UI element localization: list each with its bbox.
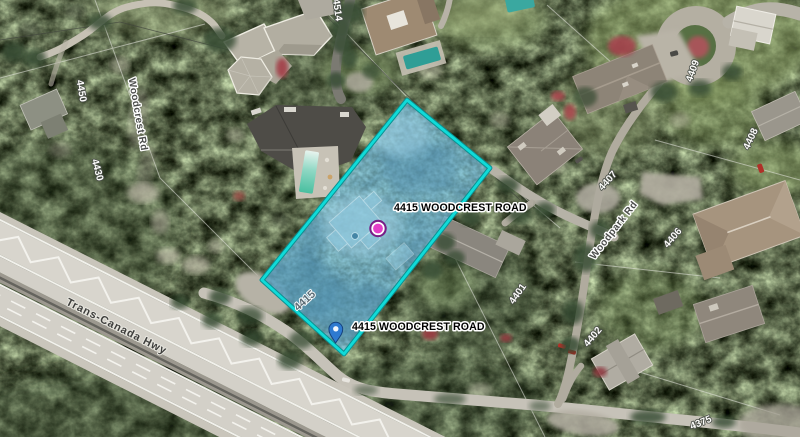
svg-text:4415 WOODCREST ROAD: 4415 WOODCREST ROAD <box>394 202 527 214</box>
svg-text:4415 WOODCREST ROAD: 4415 WOODCREST ROAD <box>352 321 485 333</box>
